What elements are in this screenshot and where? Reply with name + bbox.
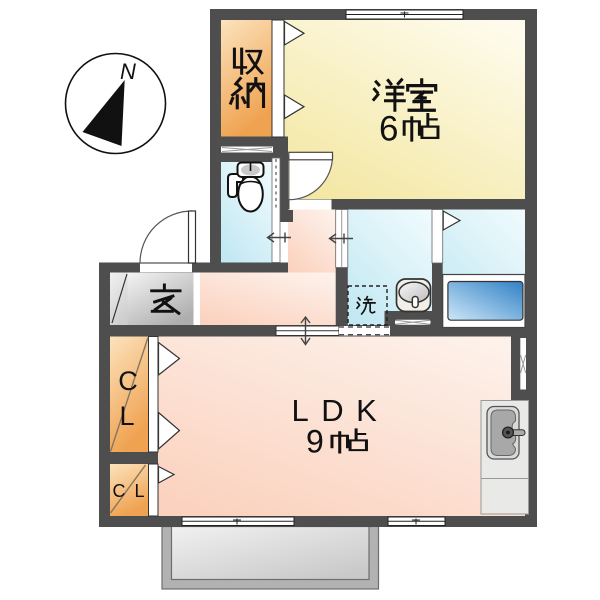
svg-text:L: L xyxy=(119,401,134,431)
svg-text:9: 9 xyxy=(306,424,324,460)
svg-text:6: 6 xyxy=(379,110,398,149)
svg-text:N: N xyxy=(120,59,136,84)
svg-text:C L: C L xyxy=(113,481,147,501)
svg-text:C: C xyxy=(118,366,138,396)
